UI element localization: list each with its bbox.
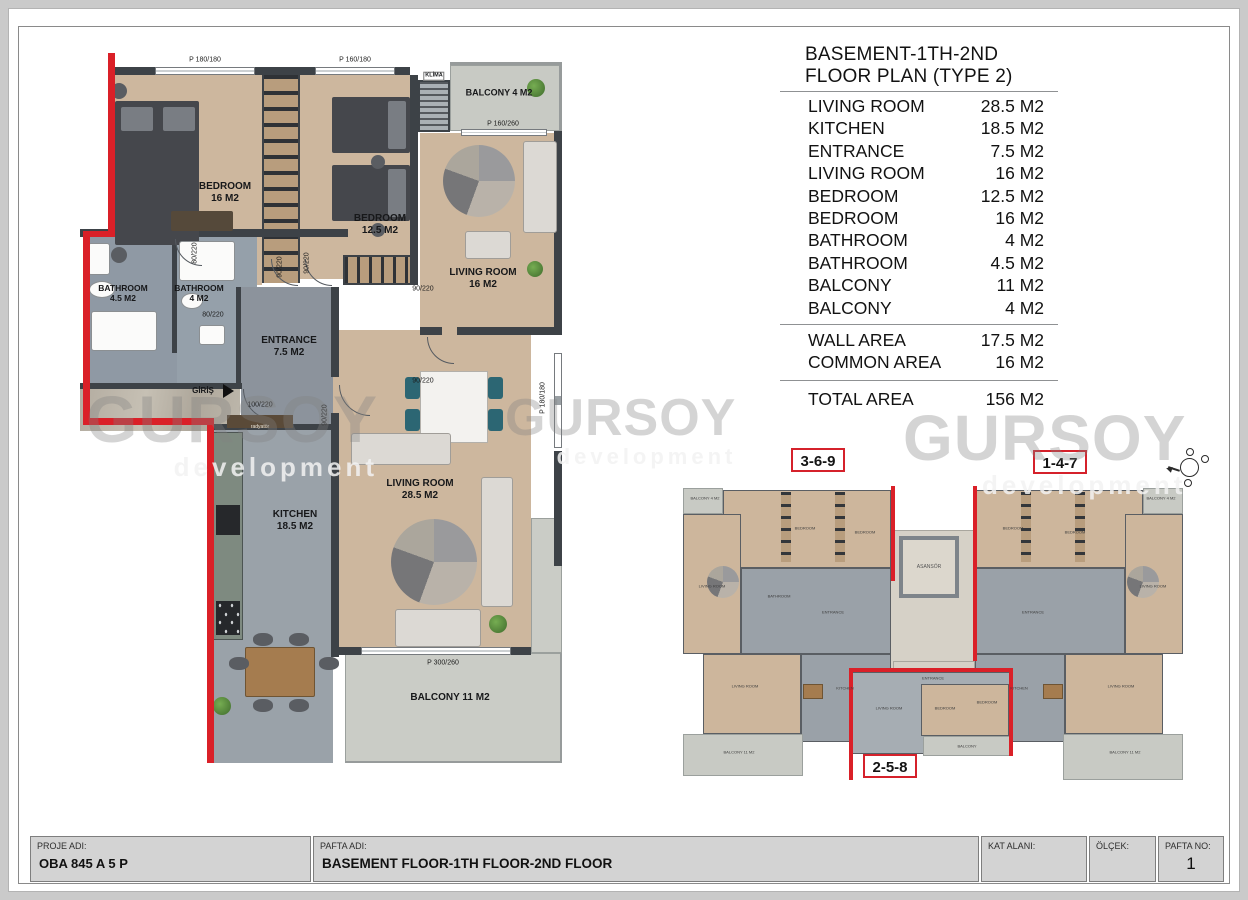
pafta-no-value: 1: [1159, 854, 1223, 874]
wardrobe-strip: [262, 75, 300, 283]
row-name: LIVING ROOM: [808, 95, 925, 117]
table-row: BATHROOM4 M2: [780, 229, 1058, 251]
window-dim: P 300/260: [427, 660, 459, 667]
door-dim: 80/220: [202, 312, 223, 319]
table-row: BALCONY4 M2: [780, 297, 1058, 319]
room-label-bedroom-large: BEDROOM 16 M2: [199, 181, 251, 205]
row-value: 28.5 M2: [981, 95, 1044, 117]
mini-room-label: BALCONY: [957, 744, 976, 749]
unit-boundary: [849, 668, 1013, 672]
mini-room-label: LIVING ROOM: [876, 706, 903, 711]
balcony-block: [683, 488, 723, 514]
room-name: BALCONY 11 M2: [410, 692, 489, 704]
mini-room-label: LIVING ROOM: [1140, 584, 1167, 589]
wall: [420, 327, 442, 335]
row-value: 17.5 M2: [981, 329, 1044, 351]
title-cell-proje: PROJE ADI: OBA 845 A 5 P: [30, 836, 311, 882]
olcek-label: ÖLÇEK:: [1096, 841, 1129, 851]
divider: [780, 91, 1058, 92]
row-name: BEDROOM: [808, 185, 898, 207]
wardrobe-strip: [781, 492, 791, 562]
row-name: TOTAL AREA: [808, 388, 914, 410]
nightstand-icon: [111, 247, 127, 263]
sofa-icon: [395, 609, 481, 647]
row-value: 16 M2: [995, 351, 1044, 373]
washbasin-icon: [88, 243, 110, 275]
balcony-large-floor: [345, 653, 562, 763]
row-value: 156 M2: [986, 388, 1044, 410]
door-dim: 90/220: [412, 286, 433, 293]
row-value: 7.5 M2: [991, 140, 1045, 162]
row-name: BALCONY: [808, 297, 892, 319]
row-name: BALCONY: [808, 274, 892, 296]
room-name: BATHROOM: [174, 283, 223, 293]
balcony-parapet: [450, 62, 562, 65]
row-name: BEDROOM: [808, 207, 898, 229]
dining-table-icon: [245, 647, 315, 697]
mini-room-label: BALCONY 4 M2: [1146, 496, 1175, 501]
room-label-balcony-large: BALCONY 11 M2: [410, 692, 489, 704]
table-row: WALL AREA17.5 M2: [780, 329, 1058, 351]
door-dim: 90/220: [277, 256, 284, 277]
table-row: LIVING ROOM28.5 M2: [780, 95, 1058, 117]
entry-arrow-icon: [223, 384, 234, 398]
table-row: COMMON AREA16 M2: [780, 351, 1058, 373]
unit-badge-369: 3-6-9: [791, 448, 845, 472]
door-dim: 90/220: [322, 404, 329, 425]
armchair-icon: [465, 231, 511, 259]
row-name: COMMON AREA: [808, 351, 941, 373]
room-area: 16 M2: [449, 279, 516, 291]
boundary-line: [83, 231, 90, 424]
plant-icon: [527, 261, 543, 277]
door-dim: 90/220: [412, 378, 433, 385]
window: [315, 67, 395, 75]
kat-alani-label: KAT ALANI:: [988, 841, 1035, 851]
area-table: BASEMENT-1TH-2ND FLOOR PLAN (TYPE 2) LIV…: [780, 44, 1058, 410]
room-name: KLİMA: [425, 73, 442, 80]
window-dim: P 160/180: [339, 57, 371, 64]
mini-room-label: KITCHEN: [1010, 686, 1028, 691]
window-dim: P 180/180: [189, 57, 221, 64]
balcony-parapet: [560, 653, 562, 761]
row-value: 18.5 M2: [981, 117, 1044, 139]
title-cell-kat-alani: KAT ALANI:: [981, 836, 1087, 882]
room-name: GİRİŞ: [192, 386, 214, 396]
unit-boundary: [891, 486, 895, 581]
balcony-parapet: [345, 761, 562, 763]
compass-icon: [1168, 446, 1212, 490]
table-row: BATHROOM4.5 M2: [780, 252, 1058, 274]
table-row: LIVING ROOM16 M2: [780, 162, 1058, 184]
mini-room-label: KITCHEN: [836, 686, 854, 691]
klima-label: KLİMA: [423, 72, 444, 81]
pafta-adi-label: PAFTA ADI:: [320, 841, 367, 851]
table-row: BEDROOM16 M2: [780, 207, 1058, 229]
mini-room-label: BEDROOM: [1003, 526, 1024, 531]
door-dim: 100/220: [247, 402, 272, 409]
row-value: 16 M2: [995, 162, 1044, 184]
elevator-label: ASANSÖR: [917, 564, 941, 570]
proje-adi-label: PROJE ADI:: [37, 841, 87, 851]
wall: [236, 287, 241, 387]
room-name: ENTRANCE: [261, 335, 317, 347]
room-label-balcony-small: BALCONY 4 M2: [466, 88, 533, 99]
title-cell-olcek: ÖLÇEK:: [1089, 836, 1156, 882]
door-dim: 80/220: [192, 242, 199, 263]
mini-room-label: BALCONY 11 M2: [724, 750, 755, 755]
living-block: [703, 654, 801, 734]
mini-room-label: BEDROOM: [855, 530, 876, 535]
mini-room-label: ENTRANCE: [1022, 610, 1044, 615]
mini-room-label: LIVING ROOM: [732, 684, 759, 689]
room-label-living-small: LIVING ROOM 16 M2: [449, 267, 516, 291]
row-name: BATHROOM: [808, 252, 908, 274]
table-title-line1: BASEMENT-1TH-2ND: [780, 44, 1058, 66]
row-value: 12.5 M2: [981, 185, 1044, 207]
bedroom-band: [975, 490, 1143, 568]
table-row: BALCONY11 M2: [780, 274, 1058, 296]
wall: [80, 383, 242, 389]
dining-table-icon: [1043, 684, 1063, 699]
table-row: KITCHEN18.5 M2: [780, 117, 1058, 139]
kitchen-sink-icon: [216, 505, 240, 535]
balcony-block: [1143, 488, 1183, 514]
proje-adi-value: OBA 845 A 5 P: [39, 856, 128, 871]
title-block: PROJE ADI: OBA 845 A 5 P PAFTA ADI: BASE…: [30, 836, 1224, 882]
room-name: BATHROOM: [98, 283, 147, 293]
overview-plan: 3-6-9 1-4-7 2-5-8 ASANSÖR BEDROOM BEDROO…: [683, 446, 1183, 790]
window: [461, 129, 547, 136]
window: [554, 353, 562, 448]
wall: [331, 287, 339, 377]
mini-room-label: BEDROOM: [795, 526, 816, 531]
unit-badge-147: 1-4-7: [1033, 450, 1087, 474]
radiator-icon: radyatör: [227, 415, 293, 428]
room-name: KITCHEN: [273, 509, 317, 521]
room-name: LIVING ROOM: [386, 478, 453, 490]
living-block: [1065, 654, 1163, 734]
room-label-entrance: ENTRANCE 7.5 M2: [261, 335, 317, 359]
stool-icon: [371, 155, 385, 169]
unit-badge-258: 2-5-8: [863, 754, 917, 778]
room-name: BALCONY 4 M2: [466, 88, 533, 99]
pillow-icon: [388, 169, 406, 217]
mini-room-label: ENTRANCE: [922, 676, 944, 681]
sofa-icon: [351, 433, 451, 465]
room-area: 16 M2: [199, 193, 251, 205]
dresser-icon: [171, 211, 233, 231]
room-name: BEDROOM: [354, 213, 406, 225]
plant-icon: [489, 615, 507, 633]
service-band: [741, 568, 891, 654]
title-cell-pafta-adi: PAFTA ADI: BASEMENT FLOOR-1TH FLOOR-2ND …: [313, 836, 979, 882]
mini-room-label: BALCONY 4 M2: [690, 496, 719, 501]
dining-table-icon: [803, 684, 823, 699]
window: [361, 647, 511, 655]
balcony-block: [1063, 734, 1183, 780]
mini-room-label: BEDROOM: [977, 700, 998, 705]
washbasin-icon: [199, 325, 225, 345]
round-rug-icon: [707, 566, 739, 598]
room-area: 18.5 M2: [273, 521, 317, 533]
mini-room-label: LIVING ROOM: [699, 584, 726, 589]
row-value: 4.5 M2: [991, 252, 1045, 274]
wardrobe-strip: [1075, 492, 1085, 562]
unit-boundary: [973, 486, 977, 661]
boundary-line: [108, 53, 115, 237]
row-name: LIVING ROOM: [808, 162, 925, 184]
wall: [410, 75, 418, 285]
table-row: BEDROOM12.5 M2: [780, 185, 1058, 207]
row-name: BATHROOM: [808, 229, 908, 251]
row-value: 16 M2: [995, 207, 1044, 229]
divider: [780, 380, 1058, 381]
bathtub-icon: [91, 311, 157, 351]
wardrobe-strip: [835, 492, 845, 562]
plant-icon: [213, 697, 231, 715]
row-value: 4 M2: [1005, 297, 1044, 319]
pillow-icon: [388, 101, 406, 149]
wall: [554, 451, 562, 566]
mini-room-label: LIVING ROOM: [1108, 684, 1135, 689]
radiator-label: radyatör: [251, 424, 269, 430]
sofa-icon: [481, 477, 513, 607]
window-dim: P 160/260: [487, 121, 519, 128]
pillow-icon: [163, 107, 195, 131]
room-area: 28.5 M2: [386, 490, 453, 502]
room-label-living-large: LIVING ROOM 28.5 M2: [386, 478, 453, 502]
mini-room-label: BATHROOM: [768, 594, 791, 599]
room-area: 12.5 M2: [354, 225, 406, 237]
giris-label: GİRİŞ: [192, 386, 214, 396]
round-rug-icon: [443, 145, 515, 217]
stove-icon: [216, 601, 240, 635]
chair-icon: [253, 633, 273, 646]
row-value: 11 M2: [997, 274, 1044, 296]
pillow-icon: [121, 107, 153, 131]
title-cell-pafta-no: PAFTA NO: 1: [1158, 836, 1224, 882]
room-name: LIVING ROOM: [449, 267, 516, 279]
window-dim: P 180/180: [540, 382, 547, 414]
wall: [331, 413, 339, 657]
main-floor-plan: radyatör BEDROOM 16 M2 BEDROOM 12.5 M2 L…: [75, 53, 565, 763]
mini-room-label: BEDROOM: [1065, 530, 1086, 535]
room-label-bathroom-small: BATHROOM 4 M2: [174, 283, 223, 303]
mini-room-label: ENTRANCE: [822, 610, 844, 615]
balcony-block: [683, 734, 803, 776]
room-area: 7.5 M2: [261, 347, 317, 359]
sofa-icon: [523, 141, 557, 233]
table-row: ENTRANCE7.5 M2: [780, 140, 1058, 162]
door-dim: 90/220: [304, 252, 311, 273]
boundary-line: [83, 418, 213, 425]
room-label-bedroom-small: BEDROOM 12.5 M2: [354, 213, 406, 237]
unit-boundary: [1009, 668, 1013, 756]
balcony-parapet: [559, 62, 562, 132]
pafta-no-label: PAFTA NO:: [1165, 841, 1211, 851]
table-title-line2: FLOOR PLAN (TYPE 2): [780, 66, 1058, 88]
room-name: BEDROOM: [199, 181, 251, 193]
pafta-adi-value: BASEMENT FLOOR-1TH FLOOR-2ND FLOOR: [322, 856, 612, 871]
wall: [457, 327, 562, 335]
row-name: WALL AREA: [808, 329, 906, 351]
divider: [780, 324, 1058, 325]
mini-room-label: BALCONY 11 M2: [1110, 750, 1141, 755]
mini-room-label: BEDROOM: [935, 706, 956, 711]
room-label-bathroom-large: BATHROOM 4.5 M2: [98, 283, 147, 303]
klima-closet: [418, 80, 450, 132]
room-area: 4 M2: [174, 293, 223, 303]
round-rug-icon: [391, 519, 477, 605]
row-name: ENTRANCE: [808, 140, 904, 162]
hall-wardrobe: [343, 255, 417, 285]
row-value: 4 M2: [1005, 229, 1044, 251]
table-total-row: TOTAL AREA156 M2: [780, 388, 1058, 410]
service-band: [975, 568, 1125, 654]
round-rug-icon: [1127, 566, 1159, 598]
boundary-line: [207, 418, 214, 763]
room-area: 4.5 M2: [98, 293, 147, 303]
row-name: KITCHEN: [808, 117, 885, 139]
window: [155, 67, 255, 75]
room-label-kitchen: KITCHEN 18.5 M2: [273, 509, 317, 533]
